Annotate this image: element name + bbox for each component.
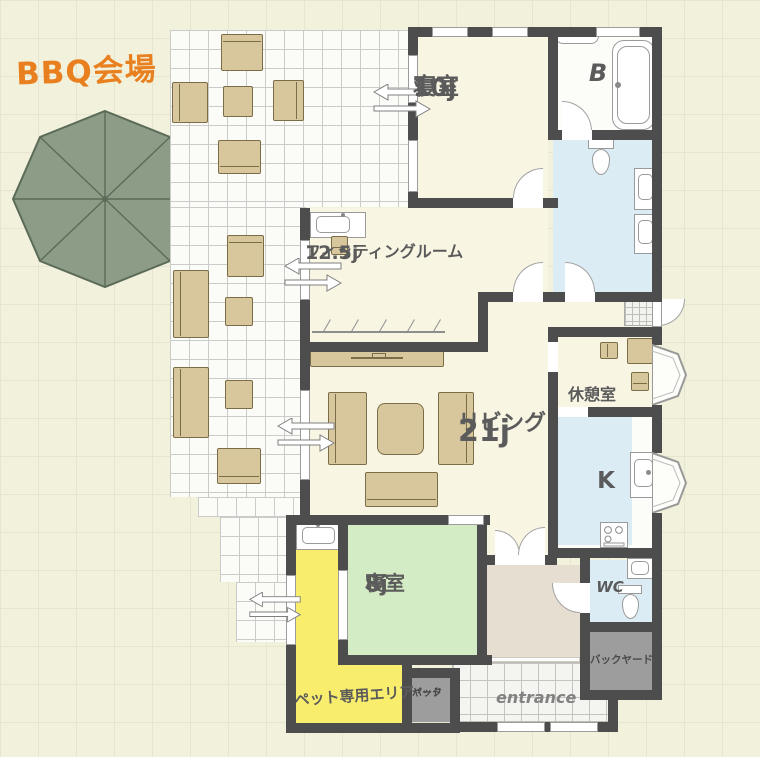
entrance-door	[550, 722, 598, 732]
fitting-sink-basin	[316, 216, 350, 233]
back-door-arc	[658, 299, 685, 326]
bay-window	[652, 343, 692, 407]
pet-sink-basin	[302, 527, 335, 544]
wc-sink-basin	[631, 561, 649, 575]
rest-room-label: 休憩室	[556, 386, 628, 404]
terrace-chair	[221, 34, 263, 71]
washstand-basin	[638, 174, 653, 200]
kitchen-faucet	[646, 470, 651, 475]
window	[492, 27, 528, 37]
rest-stool	[631, 372, 649, 391]
sliding-door	[448, 515, 484, 525]
bay-window	[652, 451, 692, 515]
terrace-tiles	[220, 517, 296, 582]
living-sofa	[365, 472, 438, 507]
airflow-arrows	[276, 418, 336, 452]
bathtub-inner	[617, 46, 650, 124]
window	[432, 27, 468, 37]
terrace-sofa	[173, 270, 209, 338]
backyard-small-floor	[412, 678, 450, 722]
hall-floor	[487, 565, 580, 657]
terrace-table	[223, 86, 253, 117]
bbq-area-label: BBQ会場	[15, 44, 157, 94]
entrance-door	[497, 722, 545, 732]
terrace-chair	[227, 235, 264, 277]
terrace-chair	[172, 82, 208, 123]
bathtub-drain	[615, 82, 621, 88]
terrace-chair	[273, 80, 304, 121]
backyard-label: バックヤード	[590, 654, 652, 666]
fitting-room-floor	[310, 292, 478, 342]
terrace-chair	[217, 448, 261, 484]
pet-area-floor	[296, 550, 338, 662]
living-table	[377, 403, 424, 455]
kitchen-label: K	[594, 468, 618, 494]
fitting-size: 12.5j	[305, 243, 358, 265]
living-size: 21j	[458, 415, 510, 450]
terrace-table	[225, 297, 253, 326]
rest-stool	[600, 342, 618, 359]
terrace-table	[225, 380, 253, 409]
window	[338, 570, 348, 640]
washstand-basin	[638, 220, 653, 244]
wc-label: WC	[594, 579, 626, 596]
window	[596, 27, 640, 37]
bathroom-label: B	[586, 60, 610, 88]
floor-plan: BBQ会場	[0, 0, 760, 757]
bedroom8-size: 8j	[365, 572, 388, 597]
airflow-arrows	[248, 592, 302, 623]
toilet-tank-icon	[588, 139, 614, 149]
entrance-label: entrance	[496, 688, 576, 707]
window	[408, 140, 418, 192]
terrace-sofa	[173, 367, 209, 438]
rest-table	[627, 338, 653, 364]
fitting-faucet	[341, 213, 345, 217]
bedroom10-size: 10j	[413, 74, 456, 103]
terrace-chair	[218, 140, 261, 174]
corridor-floor	[488, 302, 548, 352]
terrace-tiles	[198, 497, 306, 517]
stove-icon	[600, 522, 628, 548]
